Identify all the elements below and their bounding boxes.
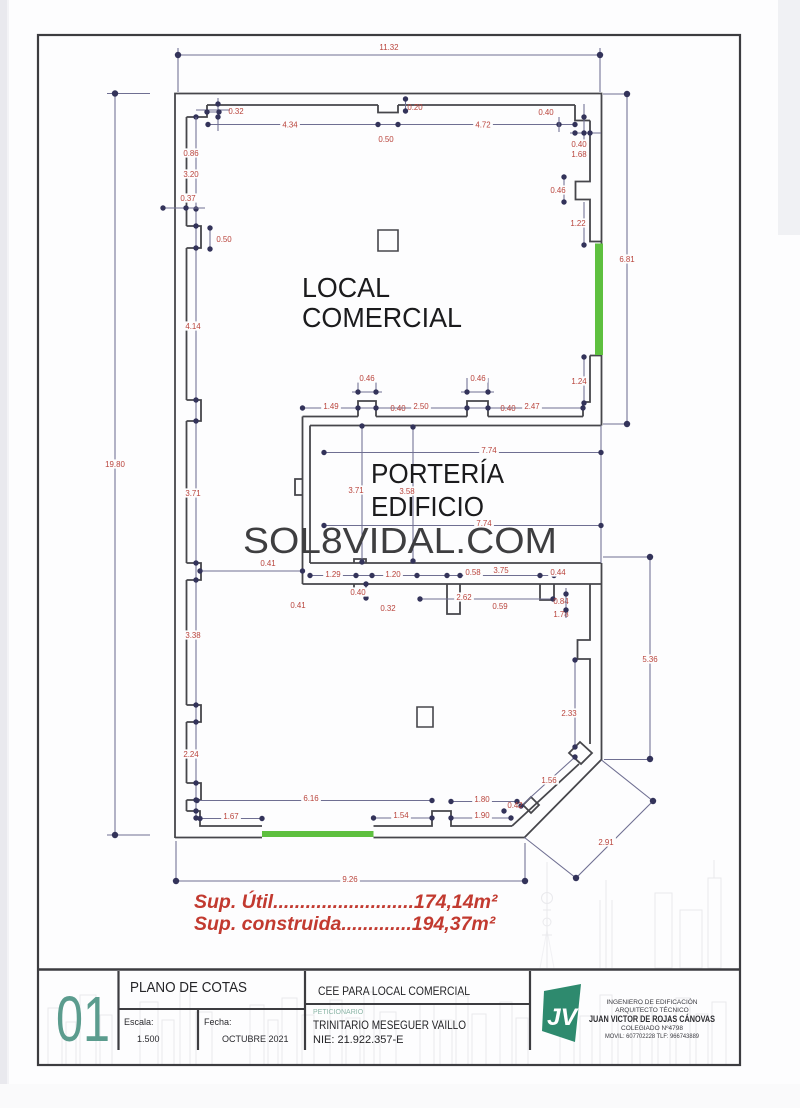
svg-text:0.40: 0.40	[500, 404, 516, 413]
svg-text:0.86: 0.86	[183, 149, 199, 158]
svg-text:PORTERÍA: PORTERÍA	[371, 458, 504, 489]
svg-text:PLANO DE COTAS: PLANO DE COTAS	[130, 980, 247, 996]
svg-text:9.26: 9.26	[342, 875, 358, 884]
svg-text:01: 01	[56, 983, 110, 1055]
svg-text:3.71: 3.71	[348, 486, 363, 495]
svg-text:Escala:: Escala:	[124, 1017, 154, 1027]
svg-text:Sup. construida.............19: Sup. construida.............194,37m²	[194, 913, 496, 935]
svg-text:0.32: 0.32	[228, 107, 243, 116]
svg-text:0.50: 0.50	[378, 135, 394, 144]
svg-text:Fecha:: Fecha:	[204, 1017, 232, 1027]
svg-text:3.71: 3.71	[185, 489, 200, 498]
svg-text:SOL8VIDAL.COM: SOL8VIDAL.COM	[243, 520, 557, 561]
svg-text:4.14: 4.14	[185, 322, 201, 331]
svg-text:ARQUITECTO TÉCNICO: ARQUITECTO TÉCNICO	[615, 1005, 688, 1014]
svg-text:NIE: 21.922.357-E: NIE: 21.922.357-E	[313, 1034, 404, 1046]
svg-text:1.29: 1.29	[325, 570, 341, 579]
svg-text:0.40: 0.40	[571, 140, 587, 149]
svg-text:6.16: 6.16	[303, 794, 319, 803]
svg-text:1.54: 1.54	[393, 811, 409, 820]
svg-text:0.59: 0.59	[492, 602, 508, 611]
svg-text:1.90: 1.90	[474, 811, 490, 820]
svg-text:0.40: 0.40	[350, 588, 366, 597]
svg-text:Sup. Útil.....................: Sup. Útil..........................174,1…	[194, 890, 498, 913]
svg-text:0.37: 0.37	[180, 194, 195, 203]
svg-text:0.40: 0.40	[390, 404, 406, 413]
svg-text:1.68: 1.68	[571, 150, 587, 159]
svg-text:4.34: 4.34	[282, 120, 298, 129]
svg-text:CEE PARA LOCAL COMERCIAL: CEE PARA LOCAL COMERCIAL	[318, 986, 471, 998]
svg-text:3.38: 3.38	[185, 631, 201, 640]
svg-text:COMERCIAL: COMERCIAL	[302, 302, 462, 333]
svg-text:0.46: 0.46	[470, 374, 486, 383]
svg-text:1.80: 1.80	[474, 795, 490, 804]
svg-text:JV: JV	[547, 1004, 579, 1031]
svg-text:1.56: 1.56	[541, 776, 557, 785]
svg-text:1.500: 1.500	[137, 1034, 160, 1044]
svg-text:0.58: 0.58	[465, 568, 481, 577]
svg-text:19.80: 19.80	[105, 460, 125, 469]
svg-text:0.20: 0.20	[407, 103, 423, 112]
svg-text:1.49: 1.49	[323, 402, 339, 411]
svg-text:1.22: 1.22	[570, 219, 585, 228]
svg-text:3.20: 3.20	[183, 170, 199, 179]
svg-text:4.72: 4.72	[475, 120, 490, 129]
svg-text:TRINITARIO MESEGUER VAILLO: TRINITARIO MESEGUER VAILLO	[313, 1020, 466, 1032]
svg-text:EDIFICIO: EDIFICIO	[371, 491, 484, 522]
svg-text:7.74: 7.74	[481, 446, 497, 455]
svg-text:0.46: 0.46	[550, 186, 566, 195]
svg-text:1.24: 1.24	[571, 377, 587, 386]
svg-text:11.32: 11.32	[379, 43, 398, 52]
svg-text:2.24: 2.24	[183, 750, 199, 759]
svg-text:0.42: 0.42	[507, 801, 522, 810]
svg-text:0.41: 0.41	[290, 601, 305, 610]
svg-text:2.50: 2.50	[413, 402, 429, 411]
svg-text:JUAN VICTOR DE ROJAS CÁNOVAS: JUAN VICTOR DE ROJAS CÁNOVAS	[589, 1014, 715, 1024]
svg-text:2.47: 2.47	[524, 402, 539, 411]
svg-text:0.84: 0.84	[553, 597, 569, 606]
svg-text:INGENIERO DE EDIFICACIÓN: INGENIERO DE EDIFICACIÓN	[606, 997, 697, 1006]
svg-text:2.62: 2.62	[456, 593, 471, 602]
svg-text:0.50: 0.50	[216, 235, 232, 244]
svg-text:5.36: 5.36	[642, 655, 658, 664]
svg-text:COLEGIADO Nº4798: COLEGIADO Nº4798	[621, 1025, 683, 1032]
svg-text:0.46: 0.46	[359, 374, 375, 383]
svg-text:PETICIONARIO: PETICIONARIO	[313, 1009, 364, 1016]
svg-text:0.40: 0.40	[538, 108, 554, 117]
svg-text:3.75: 3.75	[493, 566, 509, 575]
svg-text:2.91: 2.91	[598, 838, 613, 847]
svg-text:0.44: 0.44	[550, 568, 566, 577]
svg-text:0.32: 0.32	[380, 604, 395, 613]
svg-text:LOCAL: LOCAL	[302, 272, 390, 303]
svg-text:MOVIL: 607702228 TLF: 96674388: MOVIL: 607702228 TLF: 966743889	[605, 1033, 699, 1040]
svg-text:6.81: 6.81	[619, 255, 634, 264]
svg-text:OCTUBRE 2021: OCTUBRE 2021	[222, 1034, 289, 1044]
svg-text:1.20: 1.20	[385, 570, 401, 579]
svg-text:2.33: 2.33	[561, 709, 577, 718]
svg-text:1.67: 1.67	[223, 812, 238, 821]
